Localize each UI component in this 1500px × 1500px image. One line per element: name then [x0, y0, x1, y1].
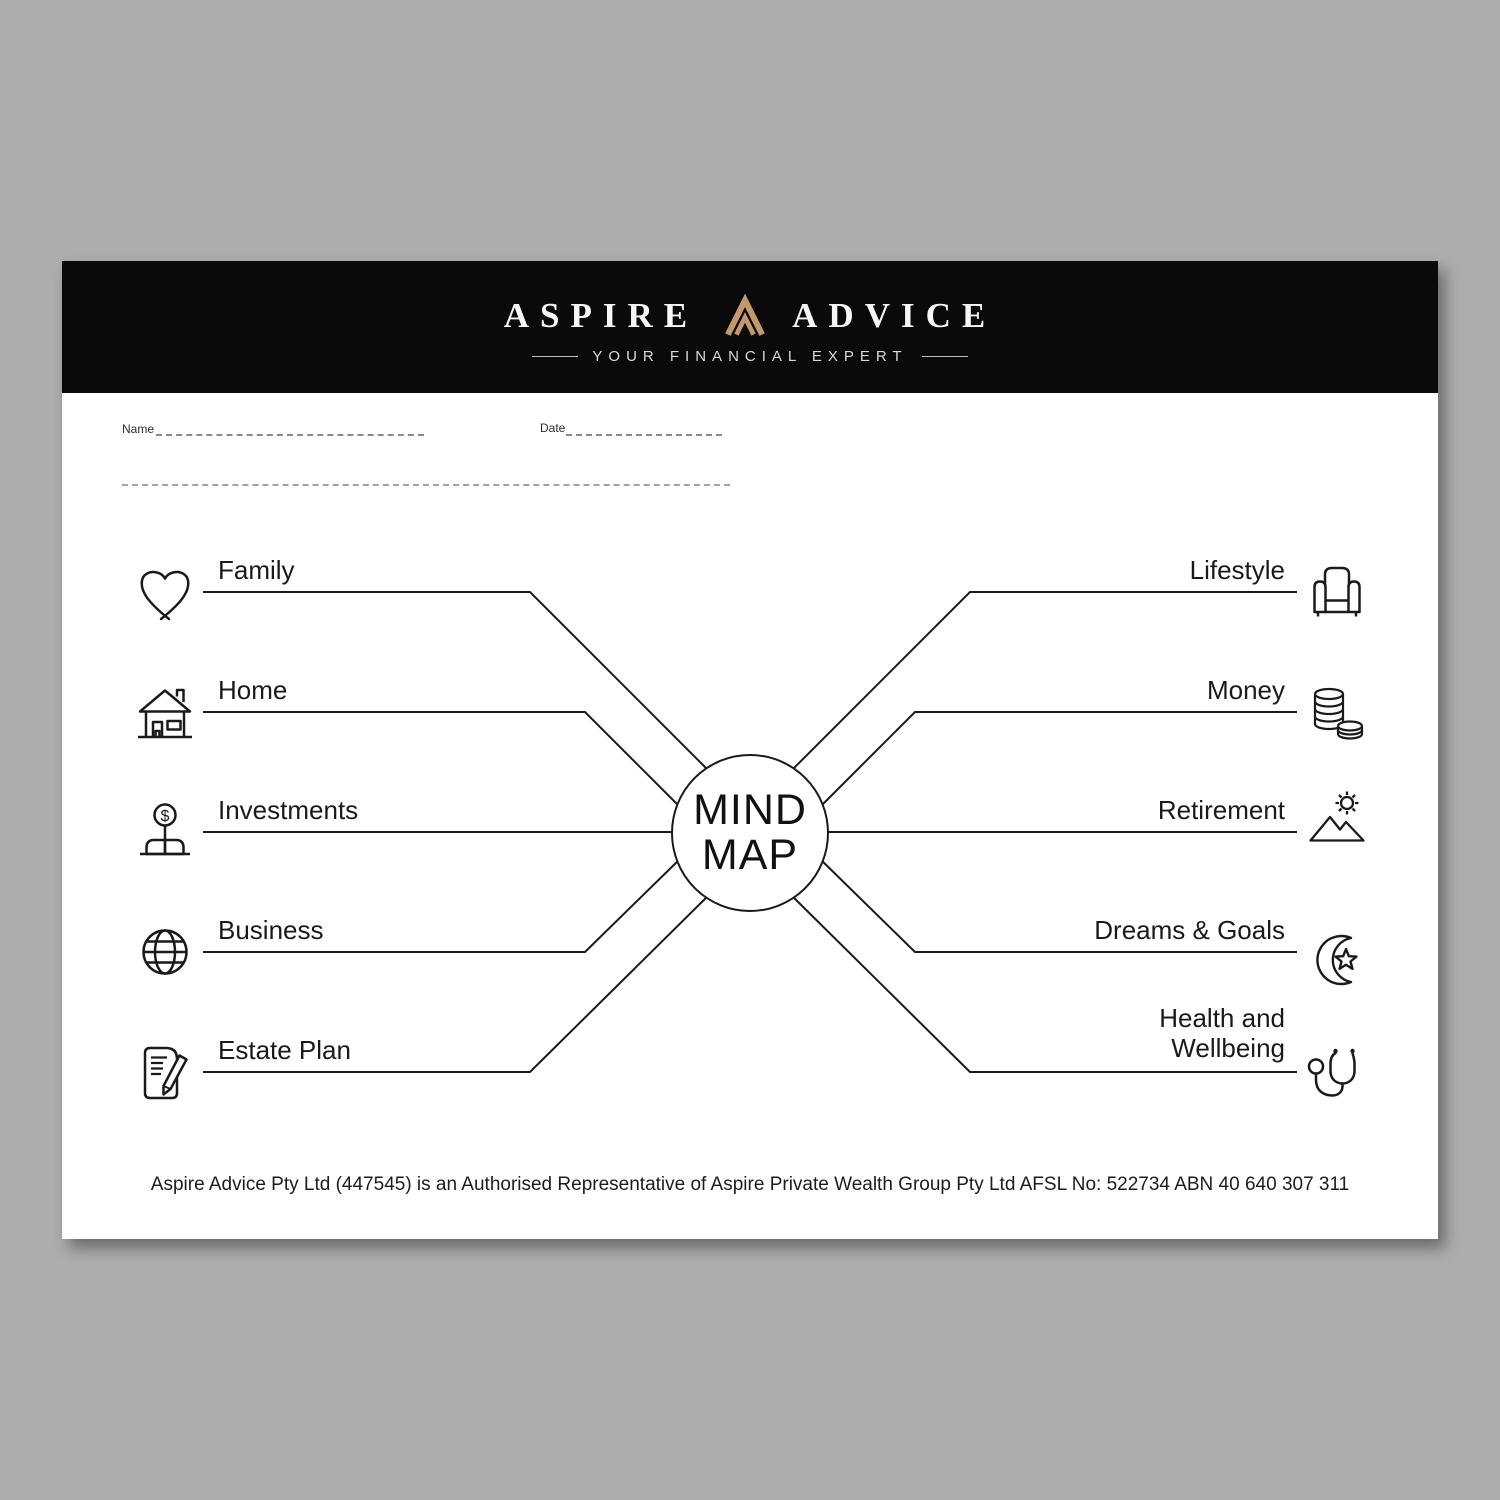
mindmap-center-title: MIND MAP [650, 785, 850, 881]
heart-icon [133, 560, 197, 624]
footer-disclaimer: Aspire Advice Pty Ltd (447545) is an Aut… [62, 1174, 1438, 1196]
document-pen-icon [133, 1040, 197, 1104]
moon-star-icon [1305, 928, 1369, 992]
coins-icon [1305, 680, 1369, 744]
label-home: Home [218, 675, 287, 705]
dollar-glyph: $ [161, 808, 170, 825]
money-plant-icon: $ [133, 800, 197, 864]
label-retirement: Retirement [1158, 795, 1285, 825]
mindmap-connector-lines [62, 261, 1438, 1239]
label-business: Business [218, 915, 324, 945]
globe-icon [133, 920, 197, 984]
label-estate-plan: Estate Plan [218, 1035, 351, 1065]
armchair-icon [1305, 560, 1369, 624]
center-title-line1: MIND [693, 788, 807, 833]
sun-mountains-icon [1305, 788, 1369, 852]
label-dreams-goals: Dreams & Goals [1094, 915, 1285, 945]
label-investments: Investments [218, 795, 358, 825]
label-lifestyle: Lifestyle [1190, 555, 1285, 585]
house-icon [133, 680, 197, 744]
label-money: Money [1207, 675, 1285, 705]
label-family: Family [218, 555, 295, 585]
stethoscope-icon [1305, 1040, 1369, 1104]
label-health-wellbeing: Health and Wellbeing [1125, 1003, 1285, 1063]
document-page: ASPIRE ADVICE YOUR FINANCIAL EXPERT Name… [62, 261, 1438, 1239]
center-title-line2: MAP [702, 833, 798, 878]
